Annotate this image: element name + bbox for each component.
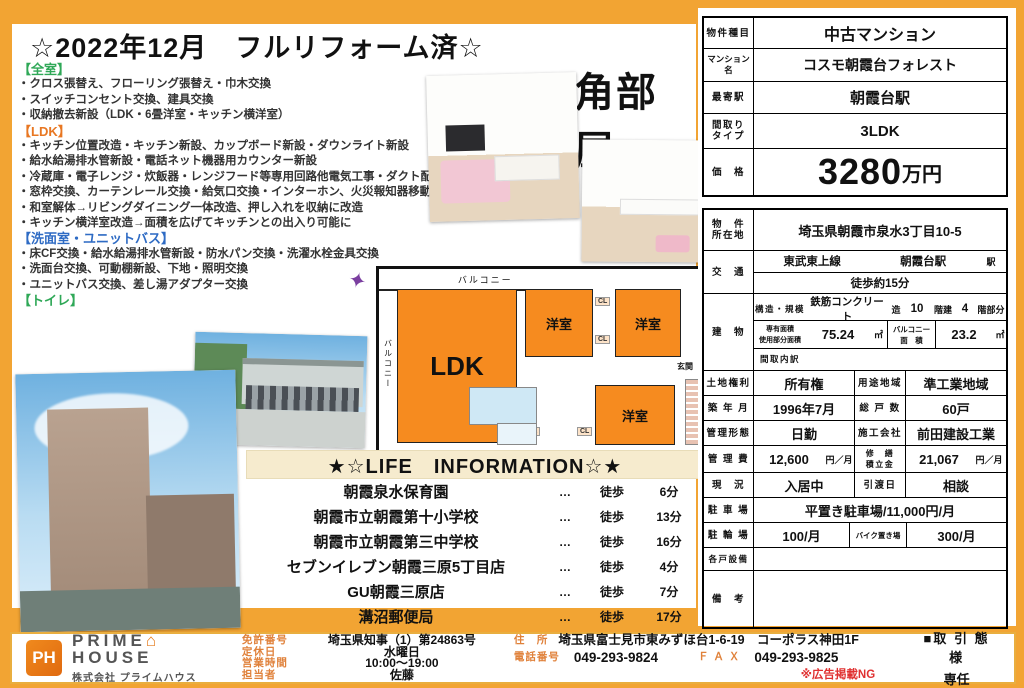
zoning-value: 準工業地域 <box>906 371 1006 395</box>
life-information: ★☆LIFE INFORMATION☆★ 朝霞泉水保育園 … 徒歩 6分 朝霞市… <box>246 450 704 629</box>
deal-type-block: ■取 引 態 様 専任 <box>915 628 998 688</box>
address-value: 埼玉県朝霞市泉水3丁目10-5 <box>754 210 1006 250</box>
row-status: 現 況 入居中 引渡日 相談 <box>704 472 1006 497</box>
bathroom-area <box>469 387 537 425</box>
reform-item: ・キッチン横洋室改造→面積を広げてキッチンとの出入り可能に <box>18 216 448 231</box>
row-label: 管理形態 <box>704 421 754 445</box>
row-property-type: 物件種目 中古マンション <box>704 18 1006 48</box>
life-information-title: ★☆LIFE INFORMATION☆★ <box>246 450 704 479</box>
section-heading-all-rooms: 【全室】 <box>18 62 448 77</box>
walk-time: 16分 <box>640 533 698 550</box>
area-unit: ㎡ <box>870 321 888 348</box>
closet-label: CL <box>595 297 610 306</box>
reform-item: ・和室解体→リビングダイニング一体改造、押し入れを収納に改造 <box>18 201 448 216</box>
structure-subrow: 構造・規模 鉄筋コンクリート 造 10 階建 4 階部分 <box>754 294 1008 320</box>
constructor-value: 前田建設工業 <box>906 421 1006 445</box>
footer: PH PRIME⌂ HOUSE 株式会社 プライムハウス 免許番号 埼玉県知事（… <box>10 632 1016 684</box>
bike-label: バイク置き場 <box>849 523 907 547</box>
row-label: 物 件 所在地 <box>704 210 754 250</box>
row-label: 築 年 月 <box>704 396 754 420</box>
life-row: GU朝霞三原店 … 徒歩 7分 <box>246 579 704 604</box>
walk-label: 徒歩 <box>584 608 640 625</box>
balcony-value: 23.2 <box>936 327 992 342</box>
section-heading-ldk: 【LDK】 <box>18 124 448 139</box>
facility-name: 朝霞市立朝霞第十小学校 <box>246 506 546 527</box>
mgmt-type-value: 日勤 <box>754 421 854 445</box>
repair-value: 21,067 <box>906 446 972 472</box>
price-value: 3280 万円 <box>754 149 1006 195</box>
flyer-title: ☆2022年12月 フルリフォーム済☆ <box>30 26 484 65</box>
photo-building-exterior <box>15 370 240 633</box>
facility-name: セブンイレブン朝霞三原5丁目店 <box>246 556 546 577</box>
dots: … <box>546 560 584 574</box>
bathtub-shape <box>497 423 537 445</box>
entrance-label: 玄関 <box>677 361 693 372</box>
row-label: 間取り タイプ <box>704 114 754 148</box>
reform-item: ・クロス張替え、フローリング張替え・巾木交換 <box>18 77 448 92</box>
row-label: 現 況 <box>704 473 754 497</box>
logo-house: HOUSE <box>72 648 152 667</box>
address-value: 埼玉県富士見市東みずほ台1-6-19 コーポラス神田1F <box>558 633 858 648</box>
row-access: 交 通 東武東上線 朝霞台駅 駅 徒歩約15分 <box>704 250 1006 293</box>
license-label: 免許番号 <box>242 635 304 647</box>
dots: … <box>546 485 584 499</box>
life-row: 朝霞市立朝霞第三中学校 … 徒歩 16分 <box>246 529 704 554</box>
bike-value: 300/月 <box>907 523 1006 547</box>
walk-label: 徒歩 <box>584 483 640 500</box>
area-label: 専有面積 使用部分面積 <box>754 324 806 346</box>
layout-value: 3LDK <box>754 114 1006 148</box>
spec-table-top: 物件種目 中古マンション マンション名 コスモ朝霞台フォレスト 最寄駅 朝霞台駅… <box>702 16 1008 197</box>
area-subrow: 専有面積 使用部分面積 75.24 ㎡ バルコニー 面 積 23.2 ㎡ <box>754 320 1008 348</box>
walk-label: 徒歩 <box>584 508 640 525</box>
row-address: 物 件 所在地 埼玉県朝霞市泉水3丁目10-5 <box>704 210 1006 250</box>
access-station: 朝霞台駅 <box>870 253 976 269</box>
life-row: セブンイレブン朝霞三原5丁目店 … 徒歩 4分 <box>246 554 704 579</box>
fax-label: Ｆ Ａ Ｘ <box>698 650 740 665</box>
row-station: 最寄駅 朝霞台駅 <box>704 81 1006 113</box>
mansion-name-value: コスモ朝霞台フォレスト <box>754 49 1006 81</box>
driveway <box>20 586 241 632</box>
row-notes: 備 考 <box>704 570 1006 627</box>
row-built: 築 年 月 1996年7月 総 戸 数 60戸 <box>704 395 1006 420</box>
row-parking: 駐 車 場 平置き駐車場/11,000円/月 <box>704 497 1006 522</box>
mgmt-fee-unit: 円／月 <box>824 446 854 472</box>
row-label: 駐 輪 場 <box>704 523 754 547</box>
constructor-label: 施工会社 <box>854 421 906 445</box>
walk-time: 17分 <box>640 608 698 625</box>
bicycle-value: 100/月 <box>754 523 849 547</box>
access-line: 東武東上線 <box>754 253 870 269</box>
prime-house-logo: PH PRIME⌂ HOUSE 株式会社 プライムハウス <box>12 632 242 684</box>
tel-label: 電話番号 <box>514 650 560 665</box>
room-western-3: 洋室 <box>595 385 675 445</box>
row-label: 駐 車 場 <box>704 498 754 522</box>
room-western-2: 洋室 <box>615 289 681 357</box>
dots: … <box>546 610 584 624</box>
agent-value: 佐藤 <box>304 670 500 682</box>
row-label: 土地権利 <box>704 371 754 395</box>
spec-table: 物件種目 中古マンション マンション名 コスモ朝霞台フォレスト 最寄駅 朝霞台駅… <box>702 16 1008 629</box>
row-label: 各戸設備 <box>704 548 754 570</box>
reform-item: ・窓枠交換、カーテンレール交換・給気口交換・インターホン、火災報知器移動 <box>18 185 448 200</box>
row-label: マンション名 <box>704 49 754 81</box>
section-heading-washroom: 【洗面室・ユニットバス】 <box>18 231 448 246</box>
reform-item: ・床CF交換・給水給湯排水管新設・防水パン交換・洗濯水栓金具交換 <box>18 247 448 262</box>
photo-living-room <box>426 72 580 222</box>
notes-value <box>754 571 1006 627</box>
walk-label: 徒歩 <box>584 533 640 550</box>
license-block: 免許番号 埼玉県知事（1）第24863号 定休日 水曜日 営業時間 10:00～… <box>242 635 500 681</box>
row-fees: 管 理 費 12,600 円／月 修 繕 積立金 21,067 円／月 <box>704 445 1006 472</box>
row-equipment: 各戸設備 <box>704 547 1006 570</box>
balcony-label: バルコニー 面 積 <box>888 321 936 348</box>
life-row: 朝霞市立朝霞第十小学校 … 徒歩 13分 <box>246 504 704 529</box>
area-value: 75.24 <box>806 327 870 342</box>
life-row: 朝霞泉水保育園 … 徒歩 6分 <box>246 479 704 504</box>
row-building: 建 物 構造・規模 鉄筋コンクリート 造 10 階建 4 階部分 専有面積 使用… <box>704 293 1006 370</box>
row-label: 備 考 <box>704 571 754 627</box>
ph-cube-icon: PH <box>26 640 62 676</box>
madori-subrow: 間取内訳 <box>754 348 1008 370</box>
row-label: 管 理 費 <box>704 446 754 472</box>
walk-label: 徒歩 <box>584 583 640 600</box>
mgmt-fee-value: 12,600 <box>754 446 824 472</box>
structure-zou: 造 <box>888 303 904 316</box>
pink-chair-shape <box>656 235 689 252</box>
reform-item: ・給水給湯排水管新設・電話ネット機器用カウンター新設 <box>18 154 448 169</box>
equipment-value <box>754 548 1006 570</box>
deal-value: 専任 <box>915 669 998 688</box>
spec-panel: 物件種目 中古マンション マンション名 コスモ朝霞台フォレスト 最寄駅 朝霞台駅… <box>698 8 1016 626</box>
floor-suffix: 階部分 <box>974 303 1008 316</box>
address-label: 住 所 <box>514 633 549 648</box>
facility-name: 溝沼郵便局 <box>246 606 546 627</box>
status-value: 入居中 <box>754 473 854 497</box>
walk-label: 徒歩 <box>584 558 640 575</box>
row-label: 建 物 <box>704 294 754 370</box>
parking-value: 平置き駐車場/11,000円/月 <box>754 498 1006 522</box>
balcony-left-label: バルコニー <box>379 289 399 439</box>
balcony-unit: ㎡ <box>992 328 1008 341</box>
deal-label: ■取 引 態 様 <box>915 628 998 666</box>
facility-name: GU朝霞三原店 <box>246 581 546 602</box>
madori-label: 間取内訳 <box>754 354 806 365</box>
closet-label: CL <box>577 427 592 436</box>
agent-label: 担当者 <box>242 670 304 682</box>
row-land: 土地権利 所有権 用途地域 準工業地域 <box>704 370 1006 395</box>
reform-item: ・収納撤去新設（LDK・6畳洋室・キッチン横洋室） <box>18 108 448 123</box>
reform-item: ・スイッチコンセント交換、建具交換 <box>18 93 448 108</box>
reform-item: ・キッチン位置改造・キッチン新設、カップボード新設・ダウンライト新設 <box>18 139 448 154</box>
facility-name: 朝霞市立朝霞第三中学校 <box>246 531 546 552</box>
zoning-label: 用途地域 <box>854 371 906 395</box>
built-value: 1996年7月 <box>754 396 854 420</box>
price-number: 3280 <box>818 151 902 193</box>
station-value: 朝霞台駅 <box>754 82 1006 113</box>
units-value: 60戸 <box>906 396 1006 420</box>
logo-text: PRIME⌂ HOUSE 株式会社 プライムハウス <box>72 632 197 684</box>
balcony-top-label: バルコニー <box>379 269 591 291</box>
walk-time: 4分 <box>640 558 698 575</box>
walk-time: 7分 <box>640 583 698 600</box>
row-label: 物件種目 <box>704 18 754 48</box>
address-block: 住 所 埼玉県富士見市東みずほ台1-6-19 コーポラス神田1F 電話番号 04… <box>514 633 915 683</box>
floors-label: 階建 <box>930 303 956 316</box>
walk-time: 6分 <box>640 483 698 500</box>
reform-item: ・冷蔵庫・電子レンジ・炊飯器・レンジフード等専用回路他電気工事・ダクト配管 <box>18 170 448 185</box>
units-label: 総 戸 数 <box>854 396 906 420</box>
dots: … <box>546 510 584 524</box>
row-bicycle: 駐 輪 場 100/月 バイク置き場 300/月 <box>704 522 1006 547</box>
photo-kitchen-dining <box>581 139 710 262</box>
room-western-1: 洋室 <box>525 289 593 357</box>
kitchen-counter-shape <box>620 198 699 215</box>
dots: … <box>546 585 584 599</box>
row-layout: 間取り タイプ 3LDK <box>704 113 1006 148</box>
row-management: 管理形態 日勤 施工会社 前田建設工業 <box>704 420 1006 445</box>
floor-plan: バルコニー バルコニー LDK 洋室 洋室 洋室 CL CL CL CL 玄関 <box>376 266 714 466</box>
tel-value: 049-293-9824 <box>574 650 658 665</box>
handover-label: 引渡日 <box>854 473 906 497</box>
row-label: 価 格 <box>704 149 754 195</box>
closet-label: CL <box>595 335 610 344</box>
company-name: 株式会社 プライムハウス <box>72 669 197 684</box>
repair-label: 修 繕 積立金 <box>854 446 906 472</box>
facility-name: 朝霞泉水保育園 <box>246 481 546 502</box>
flyer-left-panel: ☆2022年12月 フルリフォーム済☆ 角部屋 【全室】 ・クロス張替え、フロー… <box>12 24 696 608</box>
bicycles <box>245 385 359 413</box>
repair-unit: 円／月 <box>972 446 1006 472</box>
hours-label: 営業時間 <box>242 658 304 670</box>
row-label: 交 通 <box>704 251 754 293</box>
access-walk: 徒歩約15分 <box>851 275 910 291</box>
spec-table-detail: 物 件 所在地 埼玉県朝霞市泉水3丁目10-5 交 通 東武東上線 朝霞台駅 駅… <box>702 208 1008 629</box>
floor-number: 4 <box>956 303 974 315</box>
walk-time: 13分 <box>640 508 698 525</box>
no-ad-warning: ※広告掲載NG <box>801 669 875 681</box>
land-value: 所有権 <box>754 371 854 395</box>
property-type-value: 中古マンション <box>754 18 1006 48</box>
structure-label: 構造・規模 <box>754 304 806 315</box>
row-label: 最寄駅 <box>704 82 754 113</box>
life-row: 溝沼郵便局 … 徒歩 17分 <box>246 604 704 629</box>
price-unit: 万円 <box>902 158 942 187</box>
row-mansion-name: マンション名 コスモ朝霞台フォレスト <box>704 48 1006 81</box>
logo-line1: PRIME⌂ HOUSE <box>72 632 197 666</box>
floors-total: 10 <box>904 303 930 315</box>
fax-value: 049-293-9825 <box>754 650 838 665</box>
dots: … <box>546 535 584 549</box>
access-station-suffix: 駅 <box>976 255 1006 268</box>
table-shape <box>494 154 560 181</box>
handover-value: 相談 <box>906 473 1006 497</box>
tv-shape <box>445 124 485 151</box>
row-price: 価 格 3280 万円 <box>704 148 1006 195</box>
